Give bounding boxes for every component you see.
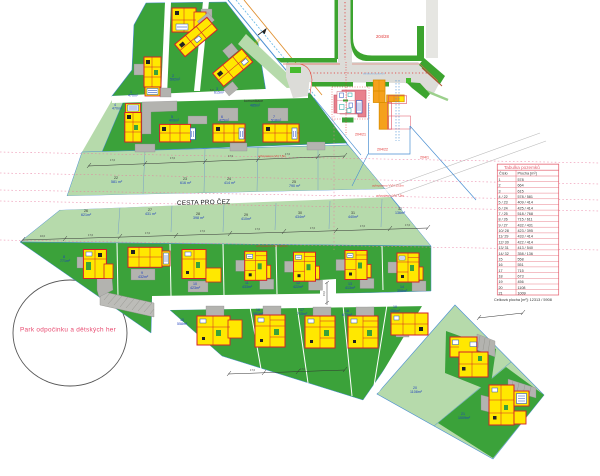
svg-text:432 / 431: 432 / 431	[518, 223, 533, 227]
svg-text:470m²: 470m²	[128, 94, 139, 98]
svg-text:3: 3	[499, 189, 501, 193]
svg-text:Číslo: Číslo	[499, 171, 508, 176]
svg-text:204/22: 204/22	[377, 148, 388, 152]
svg-text:Park odpočinku a dětských her: Park odpočinku a dětských her	[20, 327, 117, 334]
svg-text:433 / 414: 433 / 414	[518, 235, 533, 239]
svg-text:358 / 136: 358 / 136	[518, 252, 533, 256]
svg-text:431 m²: 431 m²	[145, 212, 157, 216]
svg-text:17,0: 17,0	[405, 223, 411, 227]
svg-text:18: 18	[499, 275, 503, 279]
svg-text:425m²: 425m²	[219, 119, 230, 123]
svg-text:581 m²: 581 m²	[111, 180, 123, 184]
svg-text:616 m²: 616 m²	[180, 181, 192, 185]
svg-text:21: 21	[499, 292, 503, 296]
svg-text:771m²: 771m²	[60, 259, 71, 263]
svg-text:16: 16	[499, 263, 503, 267]
svg-text:17: 17	[499, 269, 503, 273]
svg-text:413m²: 413m²	[345, 286, 356, 290]
svg-text:440m²: 440m²	[348, 215, 359, 219]
svg-text:Celková plocha [m²]: 12313 /: Celková plocha [m²]: 12313 / 5908	[494, 298, 552, 302]
svg-text:17,0: 17,0	[228, 154, 234, 158]
svg-text:asfaltový povrch: asfaltový povrch	[363, 72, 385, 76]
svg-text:615: 615	[518, 189, 524, 193]
svg-text:621m²: 621m²	[81, 213, 92, 217]
svg-text:5 / 23: 5 / 23	[499, 201, 508, 205]
svg-text:1108m²: 1108m²	[410, 390, 423, 394]
svg-text:14/ 32: 14/ 32	[499, 252, 509, 256]
svg-text:17,0: 17,0	[255, 227, 261, 231]
svg-text:425 / 414: 425 / 414	[518, 206, 533, 210]
svg-text:17,0: 17,0	[170, 156, 176, 160]
svg-text:409m²: 409m²	[169, 119, 180, 123]
svg-text:17,0: 17,0	[200, 229, 206, 233]
svg-text:485m²: 485m²	[250, 104, 261, 108]
svg-text:ochr.pásmo VN 7,5m: ochr.pásmo VN 7,5m	[258, 154, 287, 158]
svg-text:1009: 1009	[518, 292, 526, 296]
svg-text:17,0: 17,0	[360, 224, 366, 228]
svg-text:7 / 25: 7 / 25	[499, 212, 508, 216]
svg-text:551m²: 551m²	[253, 312, 264, 316]
svg-text:10/ 28: 10/ 28	[499, 229, 509, 233]
svg-text:17,0: 17,0	[250, 368, 256, 372]
svg-text:1: 1	[499, 178, 501, 182]
svg-text:470m²: 470m²	[112, 107, 123, 111]
svg-text:398 m²: 398 m²	[193, 216, 205, 220]
svg-text:592m²: 592m²	[170, 78, 181, 82]
svg-text:15,0: 15,0	[322, 290, 326, 296]
svg-text:19: 19	[499, 280, 503, 284]
svg-text:6 / 24: 6 / 24	[499, 206, 508, 210]
svg-text:423 / 395: 423 / 395	[518, 229, 533, 233]
svg-text:Plocha [m²]: Plocha [m²]	[518, 172, 537, 176]
svg-text:Tabulka pozemků: Tabulka pozemků	[504, 164, 540, 170]
svg-text:433m²: 433m²	[242, 285, 253, 289]
svg-text:715 / 611: 715 / 611	[518, 218, 533, 222]
svg-text:2: 2	[499, 184, 501, 188]
svg-text:422m²: 422m²	[293, 285, 304, 289]
svg-text:432m²: 432m²	[138, 275, 149, 279]
svg-text:423m²: 423m²	[190, 286, 201, 290]
svg-text:434m²: 434m²	[295, 215, 306, 219]
svg-text:1108: 1108	[518, 286, 526, 290]
svg-text:518m²: 518m²	[271, 119, 282, 123]
svg-text:136m²: 136m²	[395, 211, 406, 215]
svg-text:17,0: 17,0	[88, 233, 94, 237]
svg-text:673m²: 673m²	[342, 313, 353, 317]
svg-text:578 / 581: 578 / 581	[518, 195, 533, 199]
svg-text:715: 715	[518, 269, 524, 273]
svg-text:12/ 30: 12/ 30	[499, 240, 509, 244]
svg-text:558m²: 558m²	[177, 322, 188, 326]
svg-text:456m²: 456m²	[390, 309, 401, 313]
svg-text:13/ 31: 13/ 31	[499, 246, 509, 250]
svg-text:664: 664	[518, 184, 524, 188]
svg-text:ochr.pásmo VVN 12,5m: ochr.pásmo VVN 12,5m	[256, 244, 288, 248]
svg-text:204/21: 204/21	[355, 133, 366, 137]
svg-text:11/ 29: 11/ 29	[499, 235, 509, 239]
svg-text:456: 456	[518, 280, 524, 284]
svg-text:204/28: 204/28	[376, 34, 389, 39]
svg-text:17,0: 17,0	[300, 367, 306, 371]
svg-text:615m²: 615m²	[214, 91, 225, 95]
svg-text:715m²: 715m²	[297, 312, 308, 316]
svg-text:409 / 414: 409 / 414	[518, 201, 533, 205]
svg-text:16,0: 16,0	[40, 234, 46, 238]
svg-text:358m²: 358m²	[397, 289, 408, 293]
svg-text:4 / 22: 4 / 22	[499, 195, 508, 199]
svg-text:518 / 768: 518 / 768	[518, 212, 533, 216]
svg-text:ochr.pásmo VN 7,5m: ochr.pásmo VN 7,5m	[376, 194, 405, 198]
svg-text:17,0: 17,0	[110, 158, 116, 162]
svg-text:komunikace: komunikace	[244, 99, 263, 103]
svg-text:ochr.pásmo VVN 13,5m: ochr.pásmo VVN 13,5m	[372, 184, 404, 188]
svg-text:410m²: 410m²	[241, 217, 252, 221]
svg-text:20: 20	[499, 286, 503, 290]
svg-text:551: 551	[518, 263, 524, 267]
svg-text:15: 15	[499, 258, 503, 262]
svg-text:673: 673	[518, 275, 524, 279]
svg-text:558: 558	[518, 258, 524, 262]
svg-text:414 m²: 414 m²	[224, 181, 236, 185]
svg-text:17,0: 17,0	[310, 226, 316, 230]
svg-text:578: 578	[518, 178, 524, 182]
svg-text:8 / 26: 8 / 26	[499, 218, 508, 222]
svg-text:790 m²: 790 m²	[289, 184, 301, 188]
svg-text:9 / 27: 9 / 27	[499, 223, 508, 227]
svg-text:17,0: 17,0	[145, 231, 151, 235]
svg-text:1009m²: 1009m²	[458, 416, 471, 420]
svg-text:422 / 414: 422 / 414	[518, 240, 533, 244]
svg-text:204/1: 204/1	[420, 156, 429, 160]
svg-text:413 / 540: 413 / 540	[518, 246, 533, 250]
